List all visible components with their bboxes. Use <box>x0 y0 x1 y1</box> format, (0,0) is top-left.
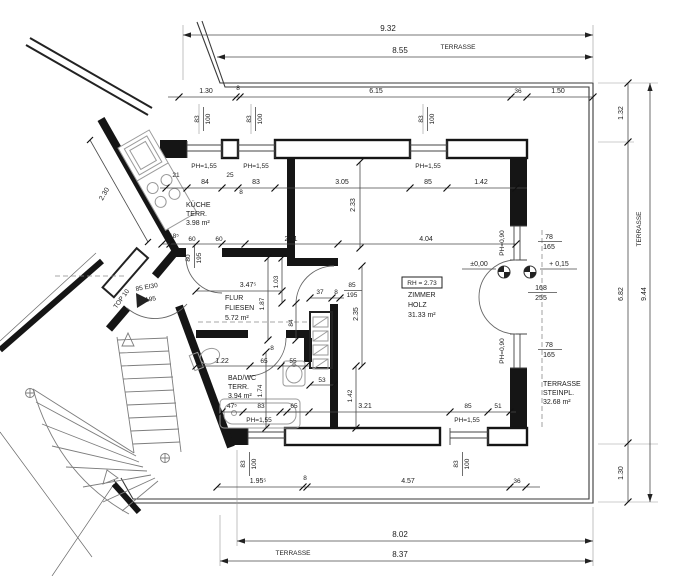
dim: 1.74 <box>257 384 264 397</box>
dim: 6.15 <box>369 88 383 95</box>
room-flur: FLUR <box>225 295 243 302</box>
bath-door-swing <box>248 338 286 376</box>
dim: 4.04 <box>419 236 433 243</box>
level-plus15: + 0,15 <box>549 261 569 268</box>
window-size: 78 <box>545 234 553 241</box>
dim: 6.82 <box>618 287 625 301</box>
dim: 2.30 <box>98 187 111 202</box>
parapet-dim: 100 <box>257 113 264 124</box>
dim: 65 <box>290 403 298 410</box>
door-size: 195 <box>347 292 358 299</box>
room-zimmer: ZIMMER <box>408 292 436 299</box>
entrance-door-type: 85 EI30 <box>135 282 159 293</box>
dim: 1.03 <box>273 275 280 288</box>
dim-total-right: 9.44 <box>641 287 648 301</box>
dim: 8 <box>239 189 243 196</box>
dim: 47⁵ <box>227 403 237 410</box>
dim: 2.11 <box>284 236 297 243</box>
dimension-labels: 9.32 8.55 TERRASSE 1.30 8 6.15 36 1.50 8… <box>98 24 648 559</box>
dim: 1.30 <box>618 466 625 480</box>
parapet-dim: 100 <box>251 458 258 469</box>
dim: 65 <box>260 358 268 365</box>
entrance-labels: 85 EI30 195 TOP 10 <box>112 282 158 310</box>
level-markers <box>498 266 536 278</box>
dim: 8 <box>270 345 274 352</box>
dim: 84 <box>201 179 209 186</box>
room-flur-area: 5.72 m² <box>225 315 249 322</box>
dim: 3.21 <box>358 403 372 410</box>
room-kueche-sub: TERR. <box>186 211 207 218</box>
dim: 55 <box>289 358 297 365</box>
staircase <box>26 333 182 514</box>
parapet-dim: 100 <box>205 113 212 124</box>
room-height: RH = 2.73 <box>407 280 437 287</box>
label-terrasse-top: TERRASSE <box>440 44 476 51</box>
room-bad: BAD/WC <box>228 375 256 382</box>
dimension-lines <box>87 25 658 566</box>
neighbor-building-walls <box>0 38 152 576</box>
dim: 60 <box>188 236 196 243</box>
dim: 4.57 <box>401 478 415 485</box>
dim: 84 <box>288 319 295 327</box>
room-terrasse: TERRASSE <box>543 381 581 388</box>
dim: 51 <box>494 403 502 410</box>
dim: 83 <box>257 403 265 410</box>
parapet-dim: 83 <box>240 460 247 468</box>
room-terrasse-area: 32.68 m² <box>543 399 571 406</box>
dim: 2.35 <box>353 307 360 321</box>
level-symbol-zero <box>498 266 510 278</box>
dim-terrace-bottom: 8.37 <box>392 550 408 559</box>
dim: 3.47⁵ <box>240 282 257 289</box>
parapet-height: PH=1,55 <box>454 417 480 424</box>
dim: 8 <box>236 85 240 92</box>
dim: 85 <box>424 179 432 186</box>
dim: 85 <box>464 403 472 410</box>
room-bad-area: 3.94 m² <box>228 393 252 400</box>
parapet-height: PH=1,55 <box>243 163 269 170</box>
door-size: 80 <box>185 254 192 262</box>
parapet-height: PH=0,90 <box>499 338 506 364</box>
parapet-dim: 83 <box>453 460 460 468</box>
dim: 1.30 <box>199 88 213 95</box>
floor-plan-drawing: 9.32 8.55 TERRASSE 1.30 8 6.15 36 1.50 8… <box>0 0 682 576</box>
dim: 21 <box>172 172 180 179</box>
label-terrasse-right: TERRASSE <box>636 211 643 247</box>
dim: 3.05 <box>335 179 349 186</box>
dim-total-bottom: 8.02 <box>392 530 408 539</box>
parapet-dim: 100 <box>429 113 436 124</box>
dim: 2.33 <box>350 198 357 212</box>
label-terrasse-bottom: TERRASSE <box>275 550 311 557</box>
dim: 1.22 <box>215 358 229 365</box>
room-zimmer-area: 31.33 m² <box>408 312 436 319</box>
dim: 8 <box>303 475 307 482</box>
door-size: 195 <box>196 252 203 263</box>
window-size: 165 <box>543 244 555 251</box>
dim: 1.42 <box>347 389 354 402</box>
unit-number: TOP 10 <box>112 288 131 310</box>
dim: 53 <box>318 377 326 384</box>
dim: 1.50 <box>551 88 565 95</box>
dim: 18⁵ <box>169 233 179 240</box>
terrace-door-size: 255 <box>535 295 547 302</box>
dim: 36 <box>514 88 522 95</box>
room-kueche: KÜCHE <box>186 201 211 209</box>
level-zero: ±0,00 <box>470 261 488 268</box>
shaft-wardrobe <box>310 312 332 369</box>
floor-plan-page: 9.32 8.55 TERRASSE 1.30 8 6.15 36 1.50 8… <box>0 0 682 576</box>
window-size: 165 <box>543 352 555 359</box>
parapet-height: PH=1,55 <box>191 163 217 170</box>
dim-terrace-top: 8.55 <box>392 46 408 55</box>
room-flur-sub: FLIESEN <box>225 305 254 312</box>
dim: 1.32 <box>618 106 625 120</box>
parapet-dim: 100 <box>464 458 471 469</box>
window-size: 78 <box>545 342 553 349</box>
parapet-dim: 83 <box>246 115 253 123</box>
dim: 37 <box>316 289 324 296</box>
room-bad-sub: TERR. <box>228 384 249 391</box>
door-size: 85 <box>348 282 356 289</box>
dim: 1.42 <box>474 179 488 186</box>
dim: 83 <box>252 179 260 186</box>
dim: 60 <box>215 236 223 243</box>
terrace-door-size: 168 <box>535 285 547 292</box>
parapet-dim: 83 <box>194 115 201 123</box>
room-zimmer-sub: HOLZ <box>408 302 427 309</box>
dim: 1.95⁵ <box>250 478 267 485</box>
dim: 36 <box>513 478 521 485</box>
dim: 25 <box>226 172 234 179</box>
dim: 1.87 <box>259 297 266 310</box>
room-terrasse-sub: STEINPL. <box>543 390 574 397</box>
dim-total-top: 9.32 <box>380 24 396 33</box>
parapet-height: PH=0,90 <box>499 230 506 256</box>
level-symbol-plus15 <box>524 266 536 278</box>
parapet-dim: 83 <box>418 115 425 123</box>
dim: 8 <box>334 289 338 296</box>
room-kueche-area: 3.98 m² <box>186 220 210 227</box>
entrance-door-height: 195 <box>145 295 157 304</box>
level-labels: ±0,00 + 0,15 <box>470 261 569 268</box>
parapet-height: PH=1,55 <box>246 417 272 424</box>
parapet-height: PH=1,55 <box>415 163 441 170</box>
